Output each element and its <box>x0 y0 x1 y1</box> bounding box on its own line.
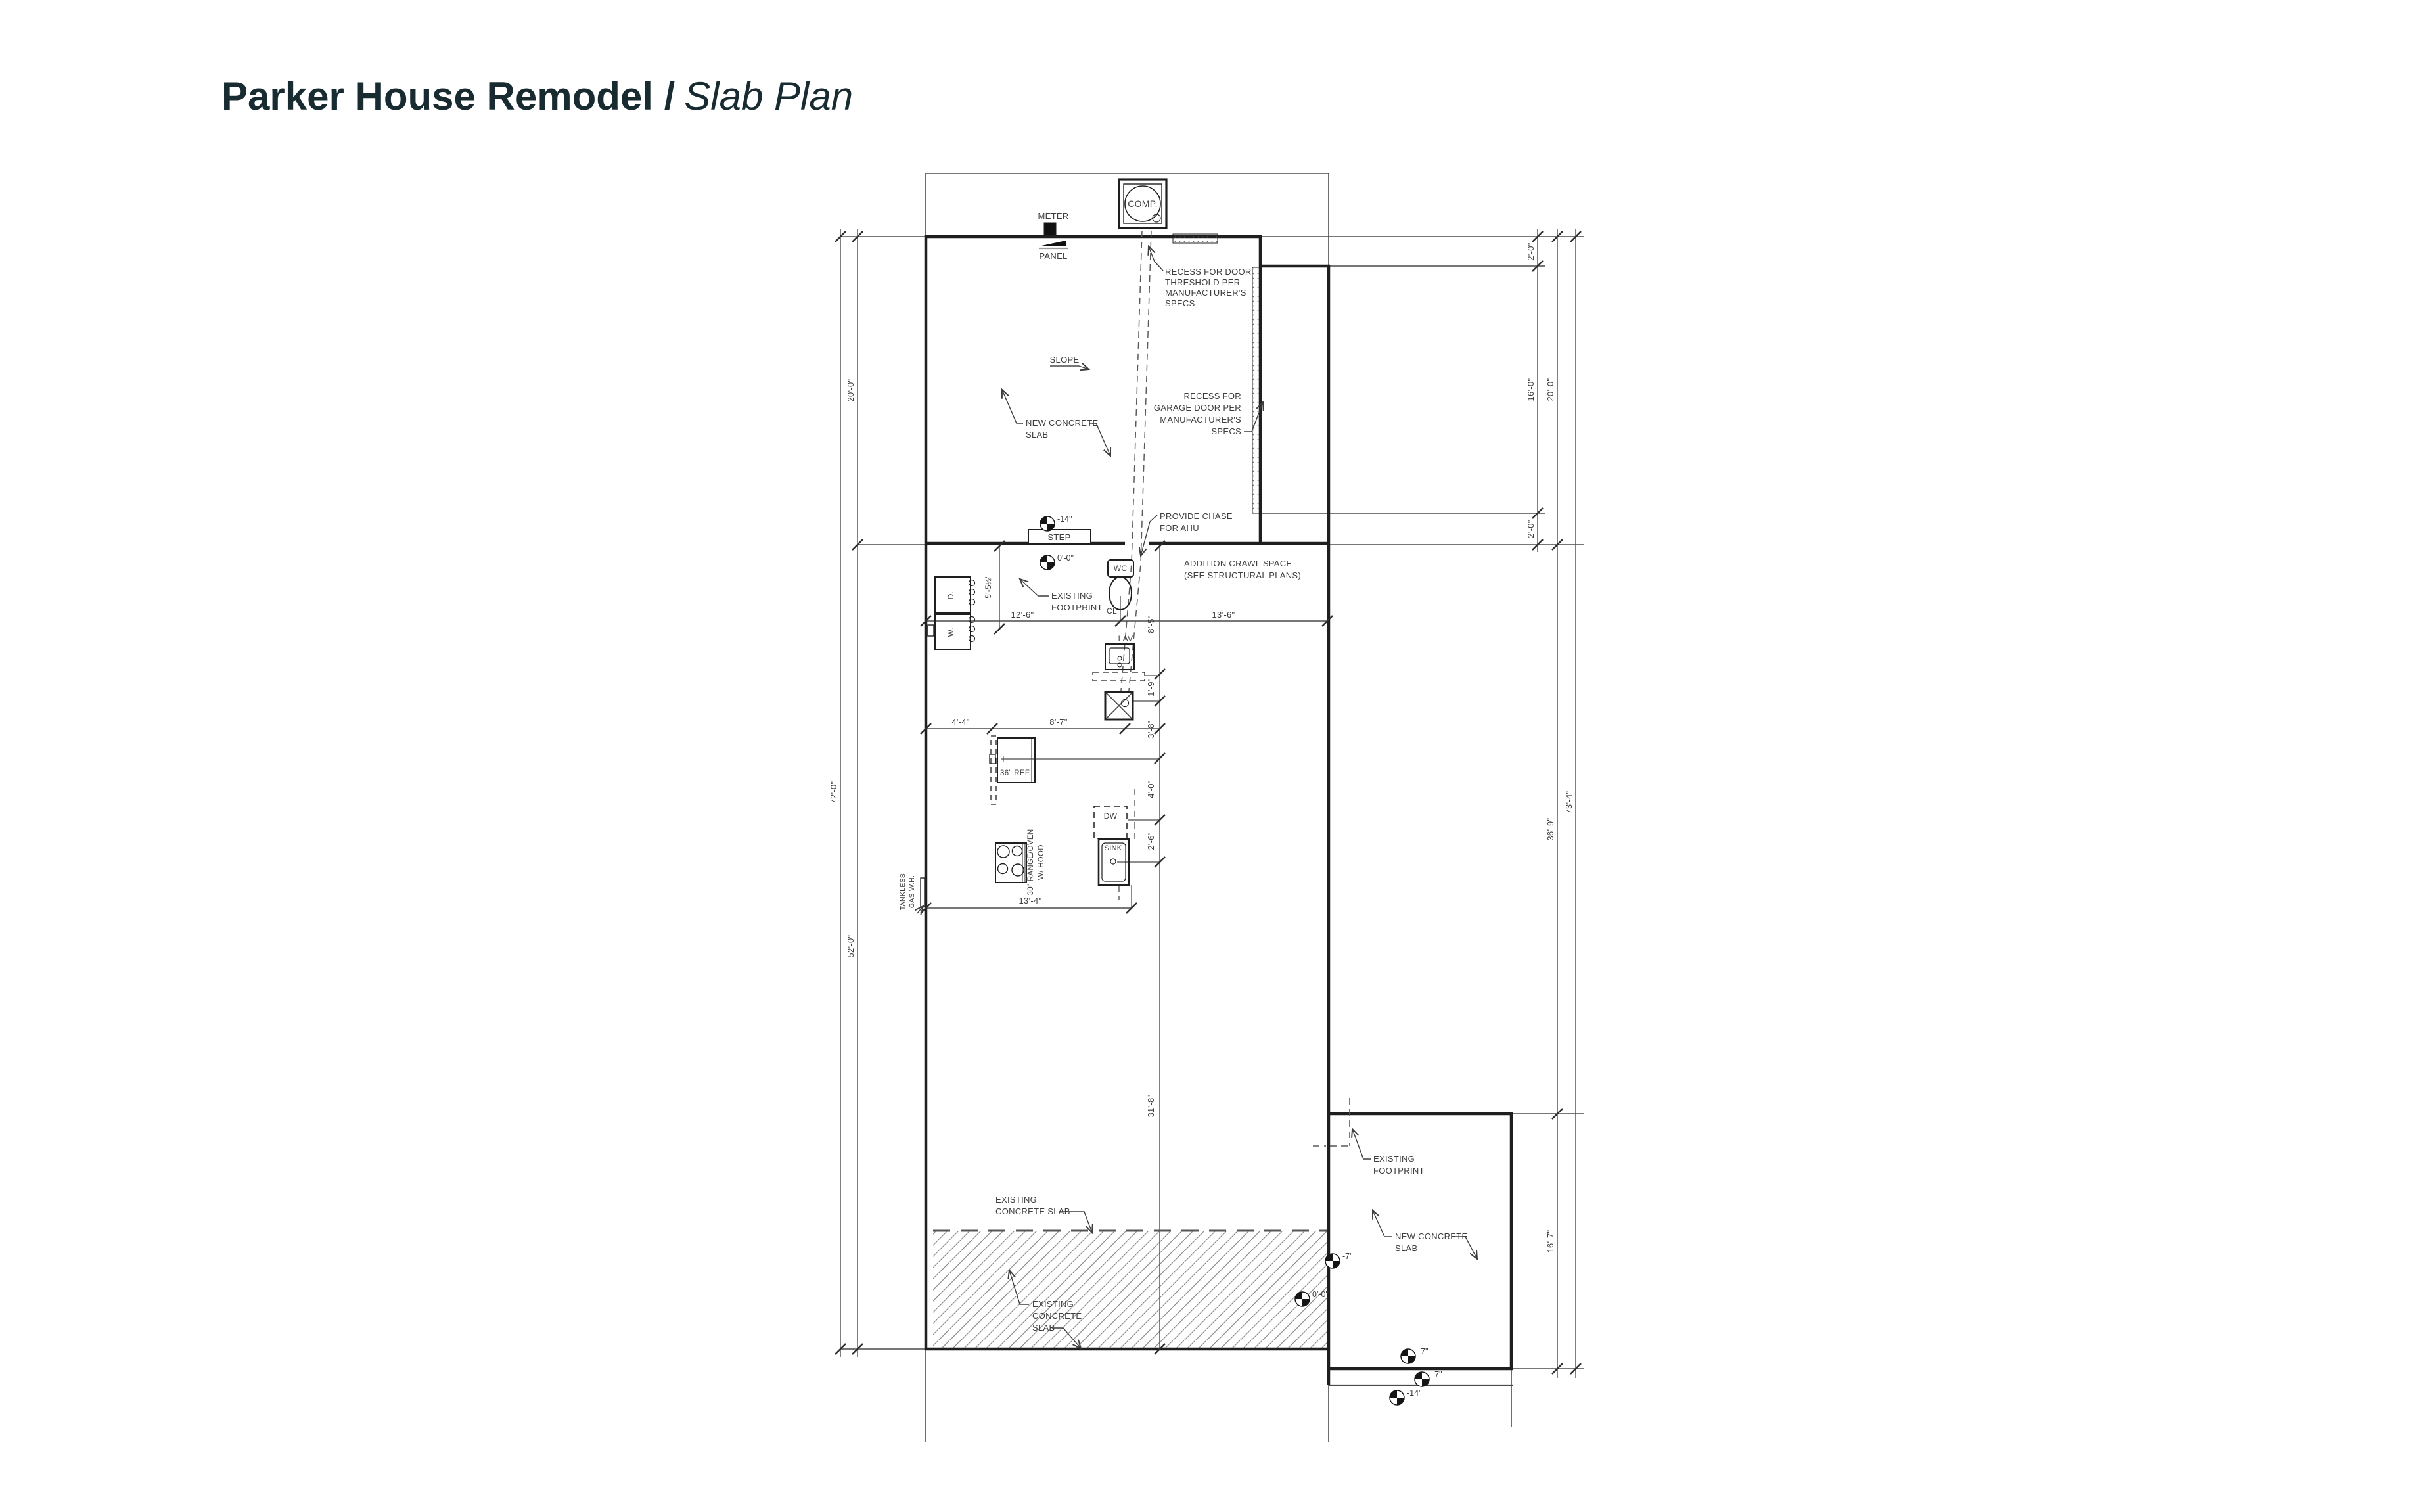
elevation-marker-quadrant <box>1390 1390 1397 1398</box>
dim-12-6: 12'-6" <box>1011 610 1034 620</box>
burner-1 <box>997 846 1009 858</box>
vanity-counter <box>1093 672 1145 681</box>
elevation-marker-value: -14" <box>1407 1388 1422 1398</box>
leader-addition-slab-left <box>1373 1210 1392 1237</box>
label-sink: SINK <box>1105 844 1122 852</box>
note-existing-footprint-1: EXISTING <box>1051 591 1093 601</box>
elevation-marker-quadrant <box>1040 555 1047 562</box>
note-door-recess-1: RECESS FOR DOOR <box>1165 267 1252 277</box>
washer-bump-3 <box>969 636 975 642</box>
washer-bump-2 <box>969 626 975 632</box>
note-addition-slab-2: SLAB <box>1395 1243 1417 1253</box>
dim-2-6: 2'-6" <box>1146 832 1156 850</box>
label-slope: SLOPE <box>1050 355 1080 365</box>
dim-garage-right-20: 20'-0" <box>1545 378 1555 401</box>
elevation-marker-value: -7" <box>1342 1252 1353 1261</box>
dim-8-5: 8'-5" <box>1146 615 1156 633</box>
note-garage-door-recess-3: MANUFACTURER'S <box>1160 415 1241 424</box>
note-addition-slab-1: NEW CONCRETE <box>1395 1231 1468 1241</box>
note-addition-footprint-1: EXISTING <box>1373 1154 1415 1164</box>
door-threshold-recess <box>1173 234 1218 243</box>
note-new-slab-garage-1: NEW CONCRETE <box>1026 418 1099 428</box>
leader-chase <box>1141 515 1157 556</box>
dim-13-6: 13'-6" <box>1212 610 1235 620</box>
elevation-marker-quadrant <box>1408 1356 1415 1363</box>
note-existing-footprint-2: FOOTPRINT <box>1051 603 1103 612</box>
dryer-bump-2 <box>969 589 975 595</box>
elevation-marker-value: -7" <box>1418 1347 1429 1356</box>
leader-addition-footprint <box>1352 1129 1371 1159</box>
label-dw: DW <box>1104 812 1118 821</box>
label-tankless-2: GAS W.H. <box>908 875 916 908</box>
dim-2-0-bottom: 2'-0" <box>1526 520 1536 538</box>
elevation-marker-value: 0'-0" <box>1057 553 1074 562</box>
fridge-door-swing <box>991 736 996 804</box>
note-door-recess-4: SPECS <box>1165 298 1195 308</box>
dryer-bump-1 <box>969 580 975 586</box>
burner-3 <box>998 864 1008 874</box>
plan-canvas: METERPANELCOMP.RECESS FOR DOORTHRESHOLD … <box>0 0 2424 1509</box>
dim-72-0: 72'-0" <box>829 781 838 804</box>
sink-drain <box>1110 859 1116 864</box>
dim-36-9: 36'-9" <box>1545 817 1555 840</box>
note-addition-footprint-2: FOOTPRINT <box>1373 1166 1425 1176</box>
washer-bump-1 <box>969 617 975 623</box>
lav-faucet-1 <box>1118 656 1122 660</box>
elevation-marker-quadrant <box>1401 1349 1408 1356</box>
note-door-recess-2: THRESHOLD PER <box>1165 277 1240 287</box>
label-range-1: 30" RANGE/OVEN <box>1027 829 1035 896</box>
label-meter: METER <box>1038 211 1069 221</box>
label-wc: WC <box>1114 564 1128 573</box>
dim-1-9: 1'-9" <box>1146 678 1156 696</box>
note-existing-slab-in-2: CONCRETE <box>1032 1311 1082 1321</box>
elev-grade-minus-14: -14" <box>1390 1388 1422 1405</box>
ahu-duct-run-1 <box>1121 231 1142 691</box>
elev-east-minus-7: -7" <box>1325 1252 1353 1268</box>
dim-31-8: 31'-8" <box>1146 1094 1156 1117</box>
note-door-recess-3: MANUFACTURER'S <box>1165 288 1246 298</box>
label-step: STEP <box>1047 532 1070 542</box>
note-garage-door-recess-4: SPECS <box>1211 426 1241 436</box>
tankless-water-heater <box>921 878 925 907</box>
note-chase-1: PROVIDE CHASE <box>1160 511 1233 521</box>
dim-73-4: 73'-4" <box>1564 790 1574 813</box>
note-new-slab-garage-2: SLAB <box>1026 430 1048 440</box>
elev-garage-minus-14: -14" <box>1040 515 1072 531</box>
lav-basin <box>1109 648 1130 664</box>
dim-3-8: 3'-8" <box>1146 720 1156 738</box>
label-dryer: D. <box>946 591 955 600</box>
leader-new-slab-garage-left <box>1002 390 1023 423</box>
dim-52-0: 52'-0" <box>846 934 856 957</box>
label-cl: CL <box>1107 607 1117 616</box>
elev-addition-minus-7: -7" <box>1401 1347 1429 1363</box>
note-existing-slab-in-3: SLAB <box>1032 1323 1055 1333</box>
label-tankless-1: TANKLESS <box>899 873 907 910</box>
elevation-marker-quadrant <box>1415 1372 1422 1379</box>
dim-16-0: 16'-0" <box>1526 378 1536 401</box>
elevation-marker-value: -7" <box>1432 1370 1442 1379</box>
dim-4-0: 4'-0" <box>1146 780 1156 798</box>
elevation-marker-quadrant <box>1397 1398 1404 1405</box>
elevation-marker-quadrant <box>1333 1261 1340 1268</box>
note-garage-door-recess-2: GARAGE DOOR PER <box>1154 403 1241 413</box>
note-chase-2: FOR AHU <box>1160 523 1199 533</box>
label-washer: W. <box>946 628 955 637</box>
note-existing-slab-top-2: CONCRETE SLAB <box>995 1206 1070 1216</box>
elevation-marker-value: -14" <box>1057 515 1072 524</box>
burner-4 <box>1012 864 1024 876</box>
dim-13-4: 13'-4" <box>1019 896 1042 905</box>
dim-2-0-top: 2'-0" <box>1526 242 1536 260</box>
dim-garage-left-20: 20'-0" <box>846 378 856 401</box>
note-existing-slab-in-1: EXISTING <box>1032 1299 1074 1309</box>
laundry-wall-box <box>928 625 934 636</box>
ahu-port <box>1122 700 1129 707</box>
dim-8-7: 8'-7" <box>1049 717 1067 727</box>
dim-4-4: 4'-4" <box>951 717 969 727</box>
dim-5-5: 5'-5½" <box>984 575 993 599</box>
elev-main-0-0: 0'-0" <box>1040 553 1074 570</box>
note-garage-door-recess-1: RECESS FOR <box>1183 391 1241 401</box>
existing-concrete-slab-hatch <box>933 1231 1327 1349</box>
elevation-marker-quadrant <box>1047 562 1055 570</box>
elevation-marker-value: 0'-0" <box>1312 1290 1329 1299</box>
label-fridge: 36" REF. <box>1000 769 1031 777</box>
label-comp: COMP. <box>1128 198 1158 209</box>
elevation-marker-quadrant <box>1040 516 1047 524</box>
note-existing-slab-top-1: EXISTING <box>995 1195 1037 1204</box>
meter <box>1044 223 1056 235</box>
slope-arrow <box>1079 366 1089 369</box>
burner-2 <box>1013 846 1022 856</box>
dryer-bump-3 <box>969 599 975 605</box>
leader-new-slab-garage-right <box>1089 423 1110 456</box>
slab-plan-drawing: METERPANELCOMP.RECESS FOR DOORTHRESHOLD … <box>0 0 2424 1512</box>
panel <box>1041 241 1066 246</box>
note-crawl-space-1: ADDITION CRAWL SPACE <box>1184 559 1292 568</box>
leader-existing-footprint-main <box>1020 579 1049 596</box>
label-panel: PANEL <box>1039 251 1067 261</box>
label-lav: LAV <box>1118 634 1133 643</box>
label-range-2: W/ HOOD <box>1038 844 1045 880</box>
dim-16-7: 16'-7" <box>1545 1229 1555 1252</box>
elev-porch-minus-7: -7" <box>1415 1370 1442 1386</box>
garage-door-recess <box>1252 267 1262 513</box>
note-crawl-space-2: (SEE STRUCTURAL PLANS) <box>1184 570 1301 580</box>
